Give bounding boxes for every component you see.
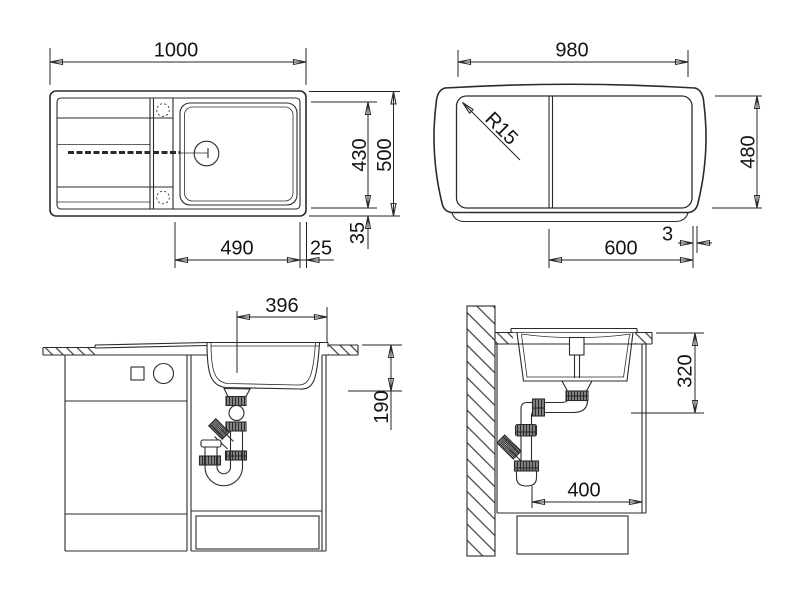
- trap-bend-inner: [217, 467, 231, 474]
- dim-label-1000: 1000: [154, 40, 199, 62]
- appliance-circle-symbol: [154, 364, 174, 384]
- dim-right-side: 430 500 35: [309, 92, 400, 250]
- plinth-panel: [196, 516, 319, 549]
- pipe-nut: [226, 397, 246, 406]
- drain-cone: [562, 381, 592, 391]
- dim-label-490: 490: [220, 238, 253, 260]
- dim-overall-width: 1000: [50, 40, 306, 86]
- sink-underside-outline: R15: [434, 84, 706, 221]
- side-view: 320 400: [467, 306, 704, 556]
- dim-label-480: 480: [738, 135, 760, 168]
- wall-hatch: [467, 306, 495, 556]
- trap-cap: [201, 440, 221, 447]
- dim-label-980: 980: [555, 40, 588, 62]
- underside-body: [434, 84, 706, 212]
- overflow-fitting: [570, 338, 585, 356]
- front-view: 396 190: [43, 295, 402, 551]
- drain-cone: [224, 389, 250, 397]
- trap-cup: [517, 471, 537, 486]
- drainboard-profile: [95, 343, 207, 346]
- dim-label-320: 320: [675, 354, 697, 387]
- bowl-section-outer: [207, 343, 320, 389]
- dim-width-980: 980: [458, 40, 688, 78]
- siphon-front: [200, 389, 251, 486]
- pipe-nut: [200, 456, 221, 465]
- branch-nut: [497, 435, 521, 459]
- pipe-nut: [226, 422, 246, 431]
- dim-label-25: 25: [310, 238, 332, 260]
- pipe-coupling: [533, 399, 545, 416]
- siphon-side: [497, 381, 592, 486]
- dim-label-3: 3: [662, 224, 673, 246]
- elbow-outer: [545, 401, 568, 403]
- dim-bottom-600-3: 600 3: [549, 224, 712, 269]
- countertop: [43, 343, 358, 356]
- dim-400: 400: [532, 480, 642, 509]
- pipe-nut: [515, 461, 539, 471]
- dim-label-396: 396: [265, 295, 298, 317]
- dim-label-190: 190: [371, 390, 393, 423]
- sink-installation-drawing: 1000: [0, 0, 800, 600]
- dim-right-480: 480: [712, 96, 762, 208]
- plinth-side: [517, 516, 628, 554]
- sink-front-section: [95, 343, 328, 390]
- underside-view: 980 R15 480 600 3: [434, 40, 762, 269]
- counter-hatch-left: [43, 348, 95, 356]
- dim-bottom-side: 490 25: [175, 222, 334, 268]
- appliance-square-symbol: [131, 367, 144, 380]
- dim-190: 190: [348, 345, 402, 430]
- dim-label-430: 430: [349, 138, 371, 171]
- sink-side-section: [511, 329, 637, 382]
- counter-hatch-left: [495, 333, 513, 345]
- trap-bend-outer: [205, 467, 243, 486]
- counter-hatch-right: [635, 333, 652, 345]
- ball-joint: [229, 406, 244, 421]
- top-view: 1000: [50, 40, 400, 269]
- pipe-nut: [566, 391, 588, 401]
- technical-drawing-page: 1000: [0, 0, 800, 600]
- counter-hatch-right: [328, 345, 358, 355]
- bowl-section-inner: [211, 343, 316, 385]
- sink-plan-outline: [50, 91, 306, 216]
- trap-flange: [516, 425, 537, 437]
- pipe-nut: [226, 451, 247, 460]
- dim-label-600: 600: [604, 238, 637, 260]
- dim-label-500: 500: [374, 138, 396, 171]
- underside-apron: [452, 213, 688, 222]
- dim-label-400: 400: [567, 480, 600, 502]
- dim-label-35: 35: [347, 222, 369, 244]
